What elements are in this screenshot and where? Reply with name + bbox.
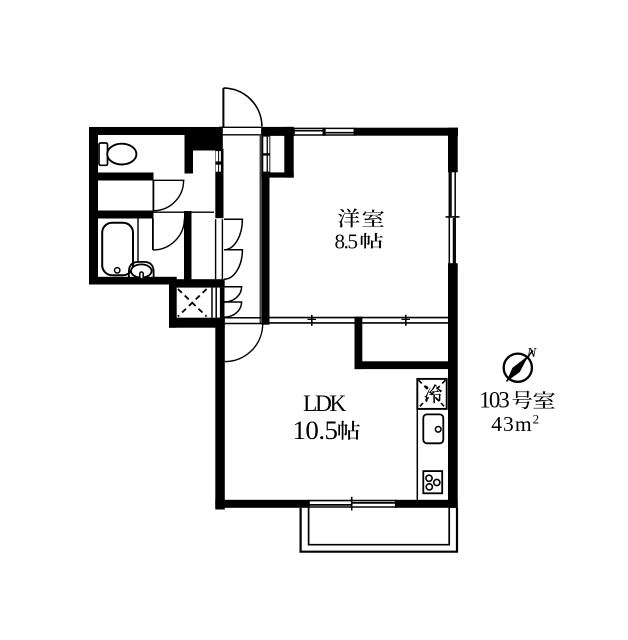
svg-text:N: N	[526, 346, 537, 361]
svg-text:8.5: 8.5	[335, 229, 359, 253]
svg-text:103: 103	[479, 388, 510, 413]
svg-text:m: m	[515, 412, 532, 436]
svg-text:LDK: LDK	[303, 391, 347, 417]
svg-text:2: 2	[533, 412, 540, 427]
svg-text:43: 43	[491, 412, 514, 436]
svg-text:10.5: 10.5	[293, 415, 339, 445]
